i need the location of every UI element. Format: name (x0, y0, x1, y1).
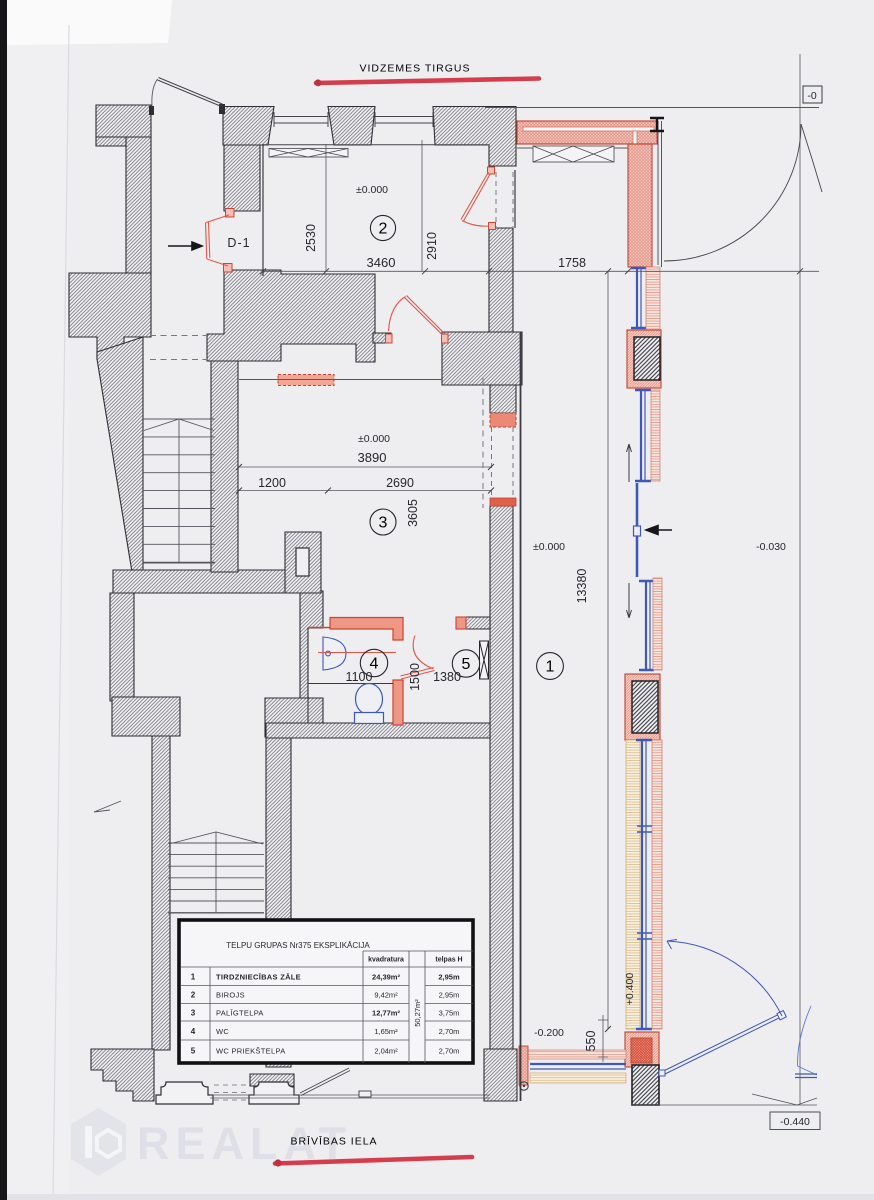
svg-text:3605: 3605 (406, 499, 420, 527)
svg-text:TIRDZNIECĪBAS ZĀLE: TIRDZNIECĪBAS ZĀLE (216, 973, 301, 982)
svg-text:1100: 1100 (346, 670, 373, 684)
svg-text:9,42m²: 9,42m² (374, 991, 398, 1000)
svg-text:2,95m: 2,95m (438, 973, 460, 982)
svg-text:1: 1 (191, 973, 196, 982)
svg-text:2,04m²: 2,04m² (374, 1047, 398, 1056)
svg-text:12,77m²: 12,77m² (372, 1009, 400, 1018)
svg-text:5: 5 (462, 656, 471, 673)
svg-text:1500: 1500 (408, 663, 422, 691)
svg-text:3890: 3890 (358, 450, 387, 465)
svg-text:3: 3 (379, 515, 388, 532)
svg-text:VIDZEMES TIRGUS: VIDZEMES TIRGUS (359, 63, 470, 75)
svg-text:±0.000: ±0.000 (533, 541, 565, 553)
svg-text:±0.000: ±0.000 (358, 433, 390, 445)
svg-text:1200: 1200 (258, 476, 286, 490)
svg-text:1: 1 (546, 659, 555, 676)
svg-text:WC PRIEKŠTELPA: WC PRIEKŠTELPA (216, 1047, 286, 1056)
svg-text:50,27m²: 50,27m² (413, 999, 422, 1027)
svg-text:BRĪVĪBAS IELA: BRĪVĪBAS IELA (290, 1136, 377, 1148)
svg-text:telpas H: telpas H (435, 957, 462, 964)
svg-text:13380: 13380 (575, 569, 589, 604)
svg-text:2,95m: 2,95m (439, 991, 460, 1000)
svg-text:WC: WC (216, 1027, 229, 1036)
svg-text:2: 2 (379, 221, 388, 238)
svg-text:-0.440: -0.440 (780, 1116, 810, 1128)
svg-text:2530: 2530 (304, 224, 318, 252)
svg-text:3: 3 (191, 1009, 196, 1018)
svg-text:550: 550 (584, 1031, 598, 1052)
svg-text:±0.000: ±0.000 (356, 184, 388, 196)
svg-text:4: 4 (370, 656, 379, 673)
svg-text:3,75m: 3,75m (439, 1009, 460, 1018)
svg-text:1,65m²: 1,65m² (374, 1027, 398, 1036)
svg-text:2,70m: 2,70m (439, 1027, 460, 1036)
svg-text:-0.030: -0.030 (756, 541, 786, 553)
svg-text:2690: 2690 (386, 476, 414, 490)
svg-text:1380: 1380 (433, 670, 461, 684)
svg-text:3460: 3460 (367, 255, 396, 270)
svg-text:D-1: D-1 (227, 236, 250, 250)
svg-text:TELPU GRUPAS Nr375 EKSPLIKĀCI: TELPU GRUPAS Nr375 EKSPLIKĀCIJA (226, 941, 370, 950)
svg-text:+0.400: +0.400 (624, 973, 636, 1006)
svg-text:PALĪGTELPA: PALĪGTELPA (216, 1009, 264, 1018)
svg-text:4: 4 (191, 1027, 196, 1036)
svg-text:24,39m²: 24,39m² (372, 973, 400, 982)
svg-text:2: 2 (191, 991, 196, 1000)
svg-text:-0.200: -0.200 (534, 1027, 564, 1039)
svg-text:BIROJS: BIROJS (216, 991, 245, 1000)
svg-text:kvadratura: kvadratura (368, 957, 404, 964)
svg-text:2,70m: 2,70m (439, 1047, 460, 1056)
svg-text:2910: 2910 (425, 232, 439, 260)
svg-text:5: 5 (191, 1047, 196, 1056)
svg-text:-0: -0 (807, 90, 816, 102)
svg-text:1758: 1758 (558, 256, 586, 270)
